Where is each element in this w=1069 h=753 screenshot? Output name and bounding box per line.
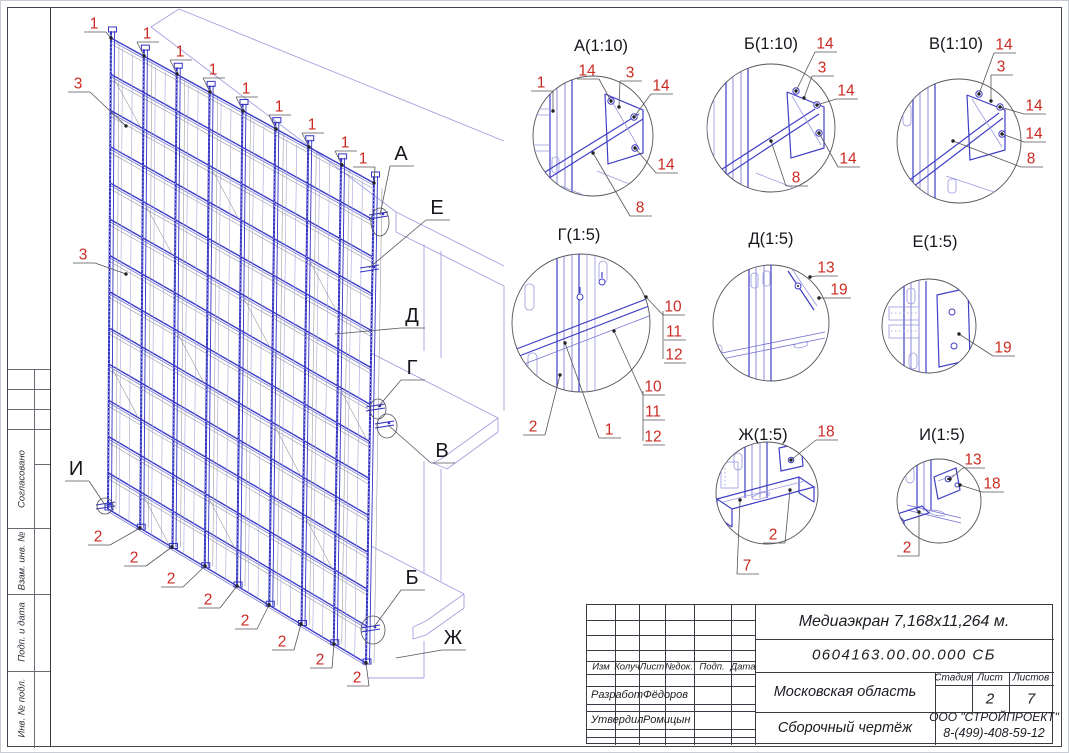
col-izm: Изм — [592, 662, 610, 673]
position-callout: 1 — [341, 134, 350, 151]
detail-callout: 19 — [830, 281, 847, 298]
sidebar-line — [8, 429, 50, 430]
detail-callout: 14 — [1025, 97, 1043, 114]
detail-title: И(1:5) — [919, 426, 965, 444]
company-phone: 8-(499)-408-59-12 — [943, 726, 1044, 740]
position-callout: 1 — [308, 116, 317, 133]
doc-title: Медиаэкран 7,168x11,264 м. — [799, 613, 1010, 631]
view-letter: Ж — [444, 627, 463, 649]
sidebar-line — [8, 369, 50, 370]
detail-content-e — [889, 281, 970, 373]
detail-title: А(1:10) — [574, 37, 628, 55]
position-callout: 3 — [79, 246, 88, 263]
sheet-header: Лист — [977, 673, 1003, 684]
detail-callout: 1 — [605, 421, 614, 438]
view-letter: И — [69, 458, 83, 480]
drawing-sheet: 1111111113322222222АЕДГВИБЖА(1:10)114314… — [0, 0, 1069, 753]
tb-line — [755, 605, 756, 745]
view-letter: Г — [407, 357, 418, 379]
drawing-type: Сборочный чертёж — [778, 720, 912, 736]
detail-callout: 3 — [818, 59, 827, 76]
detail-callout: 12 — [665, 346, 682, 363]
position-callout: 2 — [316, 651, 325, 668]
detail-callout: 10 — [644, 378, 662, 395]
name-fedorov: Фёдоров — [643, 689, 688, 701]
position-callout: 1 — [209, 61, 218, 78]
col-ndok: №док. — [665, 662, 693, 673]
detail-content-b — [701, 63, 824, 194]
detail-callout: 8 — [1027, 150, 1036, 167]
tb-line — [694, 605, 695, 745]
tb-line — [935, 685, 1054, 686]
sheet-number: 2 — [986, 691, 994, 708]
detail-callout: 11 — [666, 323, 682, 340]
detail-callout: 14 — [837, 82, 855, 99]
detail-title: Е(1:5) — [913, 233, 958, 251]
tb-line — [755, 672, 1054, 673]
col-podp: Подп. — [699, 662, 724, 673]
title-block: Медиаэкран 7,168x11,264 м. 0604163.00.00… — [586, 604, 1053, 744]
view-letter: А — [394, 143, 408, 165]
detail-title: Ж(1:5) — [738, 426, 787, 444]
tb-line — [587, 686, 755, 687]
tb-line — [587, 729, 755, 730]
detail-content-zh — [717, 442, 814, 527]
detail-callout: 3 — [997, 58, 1006, 75]
role-razrabotal: Разработ — [591, 689, 643, 701]
detail-callout: 7 — [743, 557, 752, 574]
position-callout: 1 — [176, 43, 185, 60]
sidebar-divider — [34, 369, 35, 748]
sheets-total: 7 — [1027, 691, 1035, 708]
detail-callout: 13 — [817, 259, 834, 276]
detail-callout: 1 — [537, 74, 546, 91]
position-callout: 2 — [353, 669, 362, 686]
position-callout: 2 — [278, 633, 287, 650]
tb-line — [587, 650, 755, 651]
position-callout: 1 — [90, 15, 99, 32]
detail-title: Б(1:10) — [744, 35, 798, 53]
detail-circle-i — [897, 459, 981, 543]
position-callout: 1 — [359, 150, 368, 167]
sheets-header: Листов — [1013, 673, 1049, 684]
view-letter: Б — [405, 567, 418, 589]
tb-line — [587, 674, 755, 675]
sidebar-line — [34, 464, 50, 465]
detail-callout: 2 — [903, 539, 912, 556]
position-callout: 1 — [143, 25, 152, 42]
tb-line — [587, 635, 755, 636]
detail-callout: 11 — [645, 403, 661, 420]
detail-callout: 14 — [657, 156, 675, 173]
detail-callout: 19 — [994, 339, 1011, 356]
detail-callout: 13 — [964, 451, 981, 468]
detail-title: Д(1:5) — [748, 230, 793, 248]
doc-number: 0604163.00.00.000 СБ — [812, 647, 996, 664]
position-callout: 2 — [130, 549, 139, 566]
name-romitsyn: Ромицын — [643, 714, 690, 726]
sidebar-line — [8, 594, 50, 595]
detail-callout: 18 — [983, 475, 1000, 492]
position-callout: 2 — [241, 612, 250, 629]
view-letter: Е — [430, 197, 443, 219]
detail-title: В(1:10) — [929, 35, 983, 53]
col-data: Дата — [730, 662, 755, 673]
tb-line — [1009, 672, 1010, 712]
detail-circle-g — [512, 254, 650, 392]
detail-callout: 14 — [1025, 125, 1043, 142]
detail-callout: 8 — [636, 199, 645, 216]
sidebar-label-inv-podl: Инв. № подл. — [17, 679, 28, 738]
position-callout: 2 — [94, 528, 103, 545]
sidebar-label-vzam-inv: Взам. инв. № — [17, 532, 28, 591]
detail-callout: 2 — [769, 526, 778, 543]
detail-content-g — [514, 254, 649, 393]
detail-views — [512, 63, 1021, 544]
detail-callout: 14 — [839, 150, 857, 167]
tb-line — [587, 704, 755, 705]
view-letter: Д — [405, 305, 419, 327]
detail-callout: 18 — [817, 423, 834, 440]
screen-frame-grid — [96, 27, 394, 666]
detail-callout: 14 — [995, 36, 1013, 53]
tb-line — [587, 620, 755, 621]
detail-callout: 2 — [529, 418, 538, 435]
tb-line — [731, 605, 732, 745]
tb-line — [587, 711, 755, 712]
callout-stack-connectors — [643, 311, 663, 441]
sidebar-line — [8, 528, 50, 529]
detail-content-d — [715, 265, 825, 381]
company-name: ООО "СТРОЙПРОЕКТ" — [929, 710, 1059, 724]
tb-line — [755, 639, 1054, 640]
position-callout: 1 — [242, 80, 251, 97]
region-name: Московская область — [774, 684, 917, 700]
col-list: Лист — [640, 662, 664, 673]
position-callout: 3 — [74, 75, 83, 92]
detail-callout: 14 — [816, 35, 834, 52]
role-utverdil: Утвердил — [591, 714, 643, 726]
detail-callout: 10 — [664, 298, 682, 315]
detail-title: Г(1:5) — [558, 226, 601, 244]
position-callout: 2 — [204, 591, 213, 608]
sidebar-line — [8, 389, 50, 390]
sidebar-label-podp-data: Подп. и дата — [17, 602, 28, 661]
position-callout: 1 — [275, 98, 284, 115]
detail-content-i — [897, 459, 961, 536]
col-kolich: Колуч — [614, 662, 640, 673]
detail-callout: 3 — [626, 64, 635, 81]
detail-circle-a — [533, 76, 653, 196]
detail-callout: 14 — [578, 62, 596, 79]
detail-circle-e — [882, 279, 976, 373]
stage-header: Стадия — [934, 673, 971, 684]
detail-callout: 12 — [644, 428, 661, 445]
sidebar-line — [8, 671, 50, 672]
sidebar-line — [8, 409, 50, 410]
sidebar-label-soglasovano: Согласовано — [17, 450, 28, 508]
position-callout: 2 — [167, 570, 176, 587]
tb-line — [972, 672, 973, 712]
view-letter: В — [435, 440, 448, 462]
detail-callout: 8 — [792, 169, 801, 186]
tb-line — [587, 737, 755, 738]
detail-callout: 14 — [652, 77, 670, 94]
